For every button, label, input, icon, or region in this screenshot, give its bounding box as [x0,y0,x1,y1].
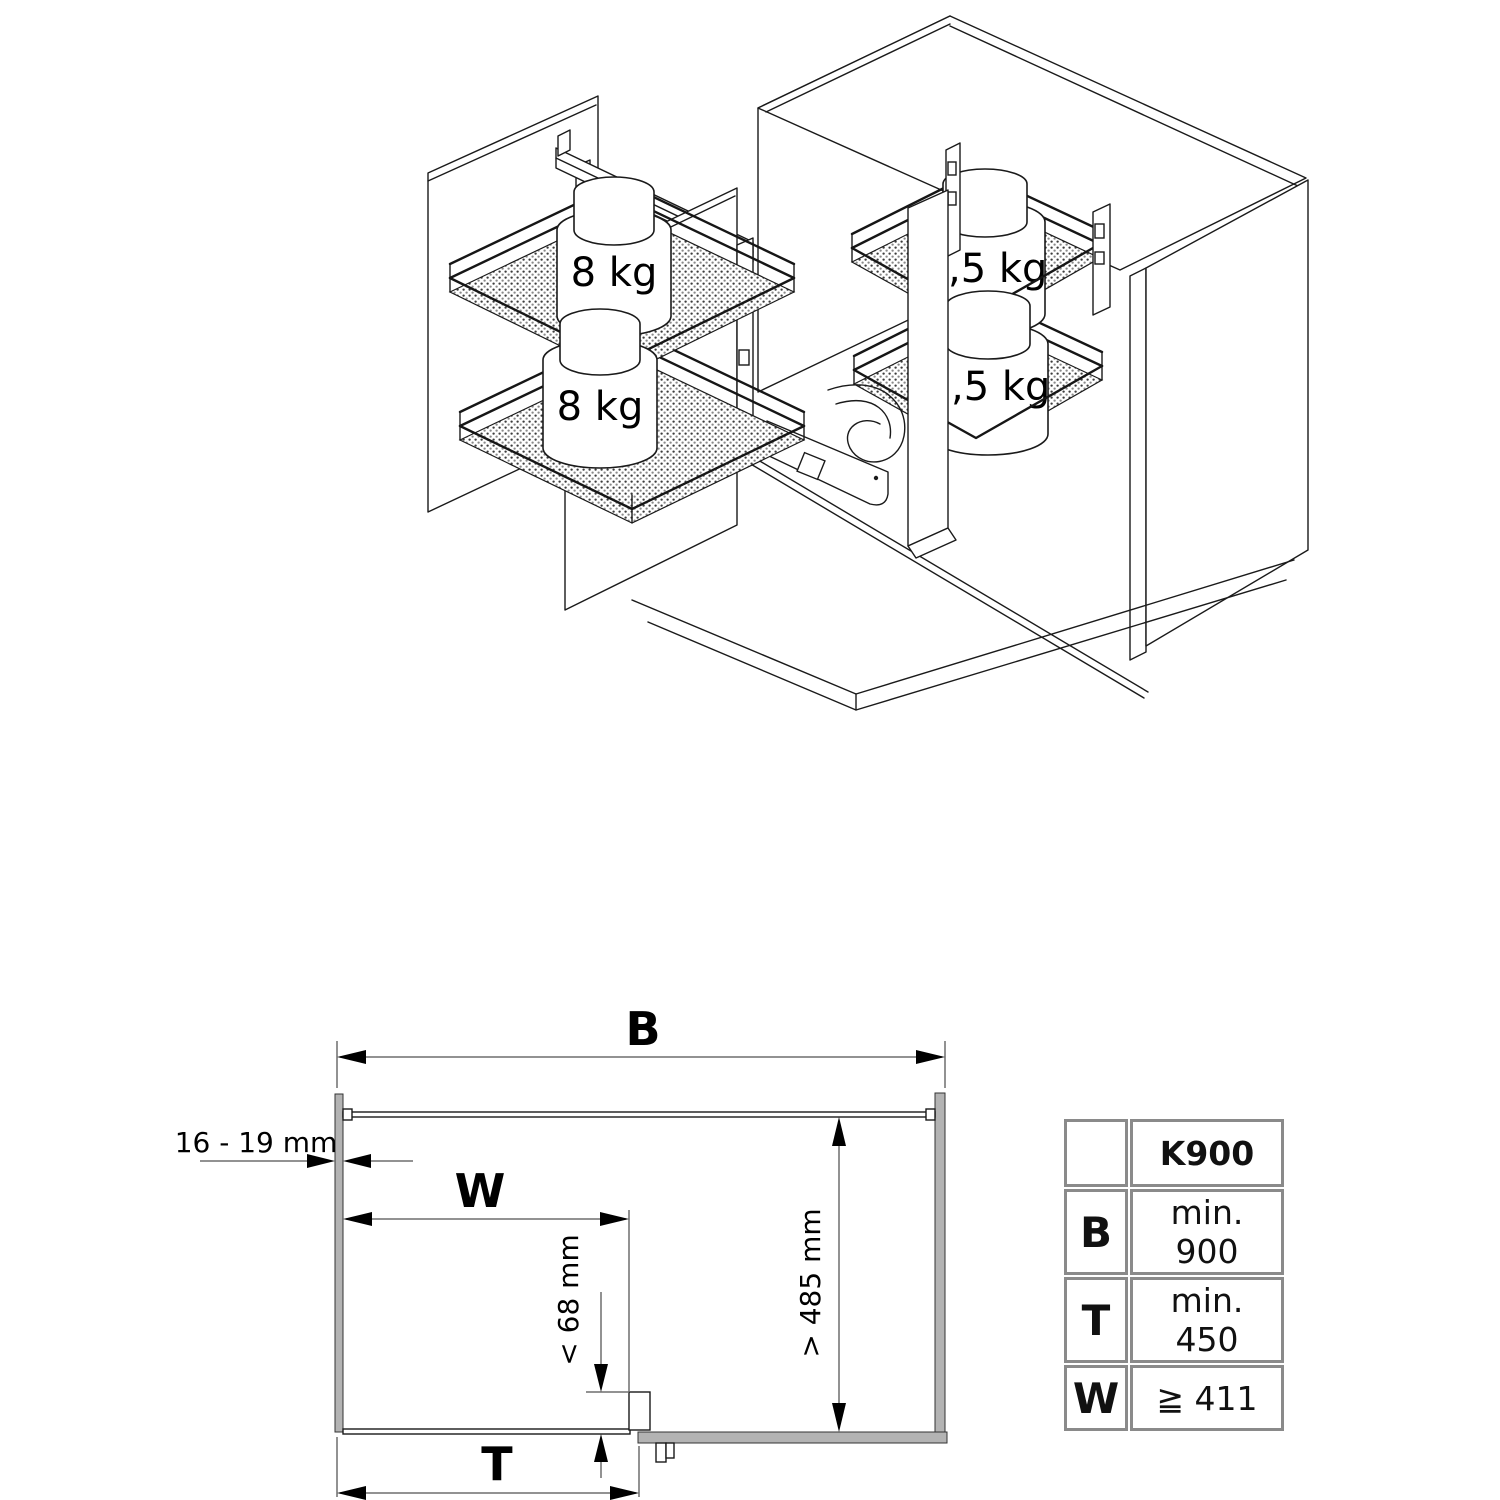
page: 9,5 kg 9,5 kg [0,0,1500,1500]
plan-front-open-edge [343,1429,630,1434]
isometric-illustration: 9,5 kg 9,5 kg [428,16,1308,710]
plan-wall-right [935,1093,945,1432]
spec-table: K900 B min. 900 T min. 450 W ≧ 411 [1062,1117,1286,1433]
panel-front-edge [1130,268,1146,660]
dim-panel-thickness: 16 - 19 mm [175,1126,413,1168]
spec-table-row-b: B min. 900 [1064,1189,1284,1275]
dim-w: W [343,1164,629,1392]
jar-left-bottom: 8 kg [543,309,657,468]
plan-rail-endcap-left [343,1109,352,1120]
spec-table-model-cell: K900 [1130,1119,1284,1187]
hinge-clearance-label: < 68 mm [552,1234,585,1365]
jar-weight-label: 8 kg [557,384,644,430]
dim-t: T [337,1437,639,1500]
back-rail-post-2 [1093,204,1110,315]
plan-hinge-notch-1 [656,1443,666,1462]
spec-table-corner-cell [1064,1119,1128,1187]
plan-back-rail [343,1112,935,1117]
jar-weight-label: 8 kg [571,250,658,296]
plan-wall-bottom [638,1432,947,1443]
dim-b: B [337,1002,945,1088]
spec-table-row-t: T min. 450 [1064,1277,1284,1363]
panel-face [1146,180,1308,646]
min-depth-label: > 485 mm [794,1208,827,1357]
spec-param-w: W [1064,1365,1128,1431]
plan-hinge-block [629,1392,650,1430]
spec-table-header-row: K900 [1064,1119,1284,1187]
panel-thickness-label: 16 - 19 mm [175,1126,338,1159]
plan-rail-endcap-right [926,1109,935,1120]
dim-w-label: W [455,1164,506,1218]
dim-b-label: B [625,1002,660,1056]
spec-value-w: ≧ 411 [1130,1365,1284,1431]
dim-t-label: T [481,1437,513,1491]
dim-hinge-clearance: < 68 mm [552,1234,629,1478]
plan-drawing: B 16 - 19 mm W < 68 mm > 485 [175,1002,947,1500]
spec-value-b: min. 900 [1130,1189,1284,1275]
spec-value-t: min. 450 [1130,1277,1284,1363]
plan-hinge-notch-2 [666,1443,674,1458]
spec-param-b: B [1064,1189,1128,1275]
spec-param-t: T [1064,1277,1128,1363]
cable-loop2 [836,401,891,438]
dim-min-depth: > 485 mm [794,1117,846,1432]
spec-table-row-w: W ≧ 411 [1064,1365,1284,1431]
